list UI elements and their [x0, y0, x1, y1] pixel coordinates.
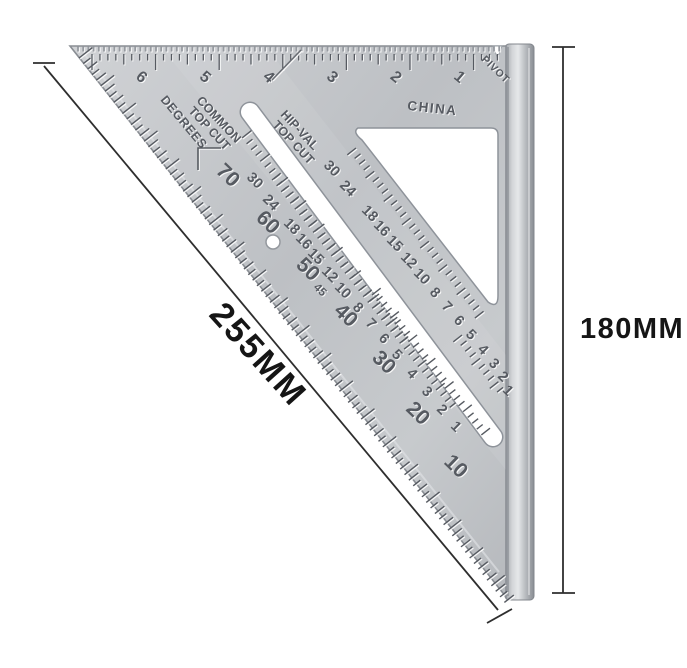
speed-square-illustration: 6543217060504030201045302418161512108765… [0, 0, 687, 668]
square-flange [505, 44, 534, 600]
flange-bar [505, 44, 534, 600]
height-dimension-line [552, 47, 575, 593]
dimension-end-cap [487, 609, 512, 623]
product-photo: 6543217060504030201045302418161512108765… [0, 0, 687, 668]
height-dimension-label: 180MM [580, 313, 684, 345]
